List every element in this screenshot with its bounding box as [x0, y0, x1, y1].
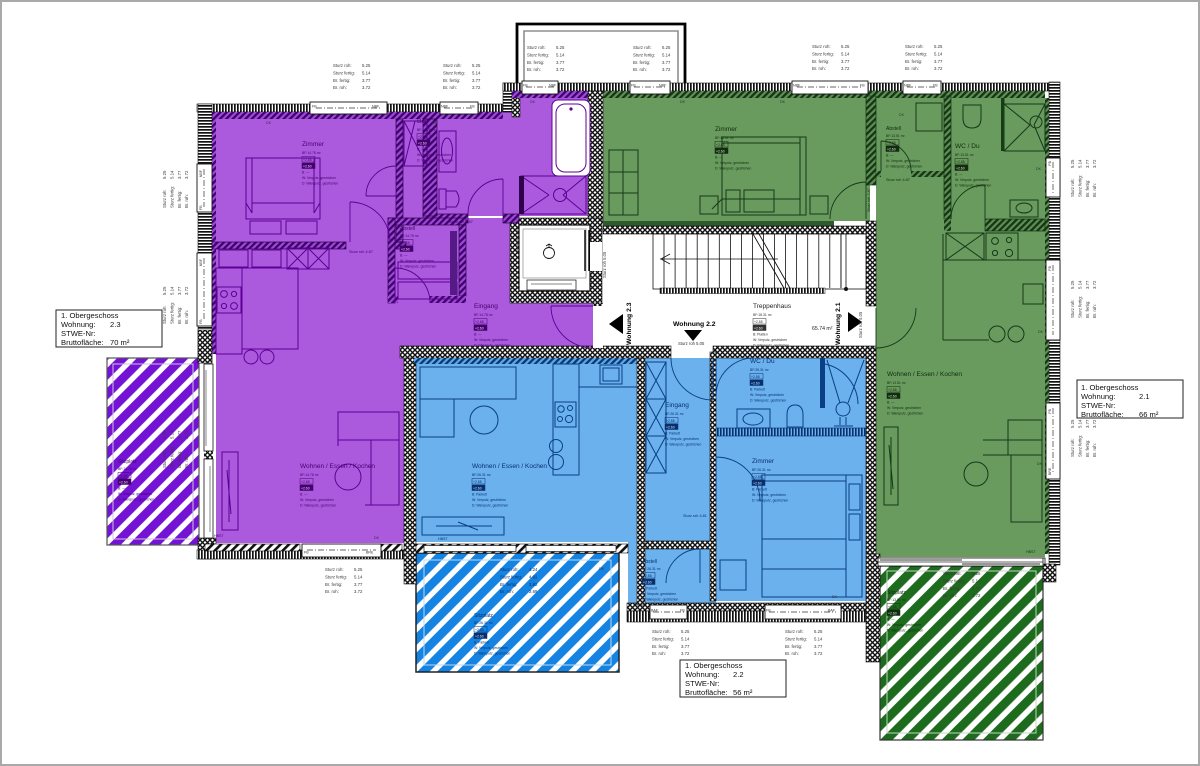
svg-text:FB: FB — [523, 84, 528, 88]
svg-text:FB: FB — [631, 84, 636, 88]
svg-text:Sturz roh 5.05: Sturz roh 5.05 — [602, 251, 607, 278]
svg-text:WC / Du: WC / Du — [750, 358, 775, 365]
svg-text:FB: FB — [312, 105, 317, 109]
svg-text:Sturz roh 4.87: Sturz roh 4.87 — [449, 220, 473, 224]
svg-text:B: Platten: B: Platten — [753, 333, 768, 337]
svg-text:FB: FB — [470, 105, 475, 109]
svg-text:DK: DK — [1037, 462, 1043, 466]
svg-text:Wohnung 2.3: Wohnung 2.3 — [626, 302, 633, 345]
svg-text:Sturz roh 4.87: Sturz roh 4.87 — [349, 250, 373, 254]
svg-text:2.2: 2.2 — [733, 670, 744, 679]
svg-text:NBF: NBF — [549, 84, 557, 88]
svg-text:STWE-Nr:: STWE-Nr: — [685, 679, 720, 688]
svg-text:NBF: NBF — [441, 105, 449, 109]
svg-text:FB: FB — [1048, 265, 1052, 270]
svg-text:DK: DK — [899, 113, 905, 117]
svg-text:HBST: HBST — [438, 537, 448, 541]
svg-text:Bruttofläche:: Bruttofläche: — [1081, 410, 1124, 419]
svg-text:Sturz roh 4.87: Sturz roh 4.87 — [886, 178, 910, 182]
svg-text:BRE: BRE — [366, 551, 374, 555]
svg-text:1. Obergeschoss: 1. Obergeschoss — [685, 661, 743, 670]
svg-text:Abstell: Abstell — [642, 559, 657, 565]
svg-text:+2.88: +2.88 — [754, 320, 763, 324]
svg-text:Wohnung 2.1: Wohnung 2.1 — [835, 302, 842, 345]
svg-text:Wohnen / Essen / Kochen: Wohnen / Essen / Kochen — [472, 463, 547, 470]
svg-text:FB: FB — [933, 84, 938, 88]
svg-text:FB: FB — [680, 609, 685, 613]
svg-text:1. Obergeschoss: 1. Obergeschoss — [1081, 383, 1139, 392]
svg-text:Wohnung 2.2: Wohnung 2.2 — [673, 321, 716, 328]
svg-text:BRE: BRE — [1048, 467, 1052, 475]
svg-text:NBF: NBF — [199, 258, 203, 266]
svg-text:DK: DK — [599, 567, 605, 571]
svg-text:Wohnen / Essen / Kochen: Wohnen / Essen / Kochen — [300, 463, 375, 470]
svg-text:DK: DK — [680, 100, 686, 104]
svg-text:FB: FB — [1048, 160, 1052, 165]
svg-text:Bad: Bad — [417, 118, 429, 125]
svg-text:Eingang: Eingang — [474, 303, 498, 310]
svg-text:W: Verputz, gestrichen: W: Verputz, gestrichen — [753, 338, 787, 342]
svg-text:Wohnen / Essen / Kochen: Wohnen / Essen / Kochen — [887, 371, 962, 378]
svg-text:2.3: 2.3 — [110, 320, 121, 329]
svg-text:DK: DK — [432, 121, 438, 125]
svg-text:66 m²: 66 m² — [1139, 410, 1159, 419]
svg-text:Sturz roh 5.05: Sturz roh 5.05 — [515, 228, 519, 252]
svg-text:NBF: NBF — [199, 169, 203, 177]
svg-text:FB: FB — [860, 84, 865, 88]
svg-text:HBST: HBST — [214, 534, 224, 538]
svg-text:Wohnung:: Wohnung: — [1081, 392, 1115, 401]
svg-text:DK: DK — [374, 536, 380, 540]
svg-text:Bruttofläche:: Bruttofläche: — [685, 688, 728, 697]
svg-text:STWE-Nr:: STWE-Nr: — [61, 329, 96, 338]
svg-text:DK: DK — [832, 595, 838, 599]
svg-text:Abstell: Abstell — [400, 226, 415, 232]
svg-text:BF:18.31 m²: BF:18.31 m² — [753, 313, 773, 317]
svg-text:+2.60: +2.60 — [754, 326, 763, 330]
svg-text:65.74 m²: 65.74 m² — [812, 326, 833, 332]
svg-text:D: Wareputz, gestrichen: D: Wareputz, gestrichen — [753, 344, 789, 348]
svg-text:DK: DK — [530, 100, 536, 104]
svg-text:Sturz roh 4.87: Sturz roh 4.87 — [710, 366, 714, 390]
svg-text:NBF: NBF — [793, 84, 801, 88]
svg-text:Wohnung:: Wohnung: — [61, 320, 95, 329]
svg-text:STWE-Nr:: STWE-Nr: — [1081, 401, 1116, 410]
svg-text:NBF: NBF — [904, 84, 912, 88]
svg-text:FB: FB — [1048, 408, 1052, 413]
svg-text:Sturz roh 5.05: Sturz roh 5.05 — [678, 341, 705, 346]
svg-text:Zimmer: Zimmer — [715, 126, 738, 133]
svg-text:NBF: NBF — [372, 105, 380, 109]
svg-text:BAF: BAF — [828, 609, 836, 613]
svg-text:Sturz roh 4.87: Sturz roh 4.87 — [867, 188, 871, 212]
svg-text:1. Obergeschoss: 1. Obergeschoss — [61, 311, 119, 320]
svg-text:Bruttofläche:: Bruttofläche: — [61, 338, 104, 347]
svg-text:Sturz roh 4.81: Sturz roh 4.81 — [683, 514, 707, 518]
svg-text:Sitzplatz: Sitzplatz — [887, 590, 906, 596]
svg-text:Abstell: Abstell — [886, 126, 901, 132]
svg-text:DK: DK — [780, 100, 786, 104]
svg-text:56 m²: 56 m² — [733, 688, 753, 697]
svg-text:FB: FB — [199, 205, 203, 210]
svg-text:Zimmer: Zimmer — [302, 141, 325, 148]
svg-text:FB: FB — [304, 551, 309, 555]
svg-text:Wohnung:: Wohnung: — [685, 670, 719, 679]
svg-text:DK: DK — [1036, 167, 1042, 171]
svg-text:Sitzplatz: Sitzplatz — [474, 613, 493, 619]
svg-text:Eingang: Eingang — [665, 402, 689, 409]
svg-text:Zimmer: Zimmer — [752, 458, 775, 465]
svg-text:DK: DK — [1038, 330, 1044, 334]
svg-text:DK: DK — [266, 121, 272, 125]
svg-text:Sturz roh 5.05: Sturz roh 5.05 — [858, 311, 863, 338]
svg-text:NBF: NBF — [659, 84, 667, 88]
svg-text:HBST: HBST — [1026, 550, 1036, 554]
svg-text:70 m²: 70 m² — [110, 338, 130, 347]
svg-text:2.1: 2.1 — [1139, 392, 1150, 401]
svg-text:FB: FB — [766, 609, 771, 613]
svg-text:Sitzplatz: Sitzplatz — [118, 459, 137, 465]
svg-text:BAF: BAF — [651, 609, 659, 613]
svg-text:WC / Du: WC / Du — [955, 143, 980, 150]
svg-text:FB: FB — [199, 319, 203, 324]
svg-text:Treppenhaus: Treppenhaus — [753, 303, 792, 310]
